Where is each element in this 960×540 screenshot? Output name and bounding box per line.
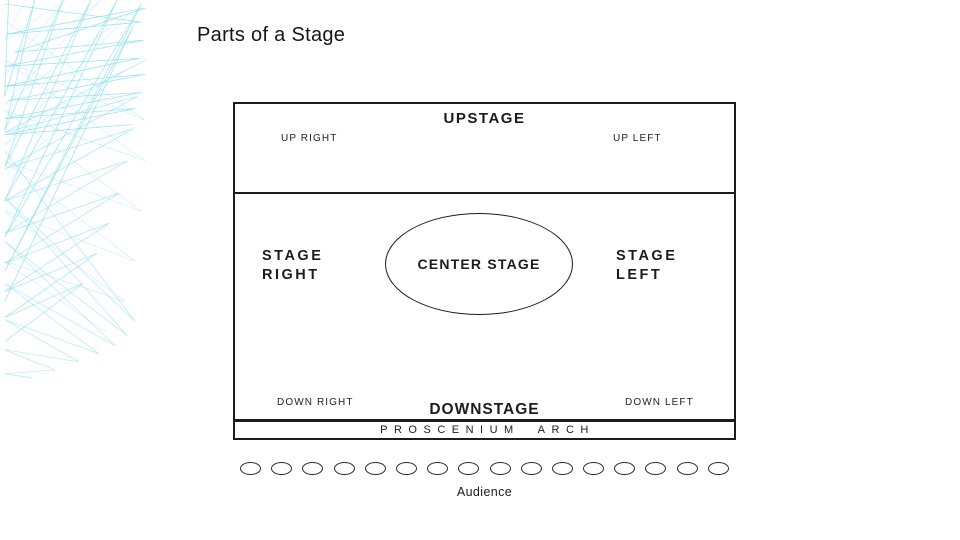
audience-seat <box>396 462 417 475</box>
audience-seat <box>302 462 323 475</box>
audience-seat <box>614 462 635 475</box>
audience-seat <box>583 462 604 475</box>
audience-seat <box>552 462 573 475</box>
stage-left-line2: LEFT <box>616 266 677 285</box>
up-right-label: UP RIGHT <box>281 133 337 144</box>
audience-seat <box>490 462 511 475</box>
down-left-label: DOWN LEFT <box>625 397 694 408</box>
slide-title: Parts of a Stage <box>197 24 345 47</box>
proscenium-arch-bar: PROSCENIUM ARCH <box>233 422 736 440</box>
audience-seats-row <box>240 461 729 475</box>
audience-seat <box>708 462 729 475</box>
stage-left-label: STAGE LEFT <box>616 247 677 285</box>
decorative-wireframe <box>0 0 150 392</box>
stage-left-line1: STAGE <box>616 247 677 266</box>
up-left-label: UP LEFT <box>613 133 662 144</box>
stage-right-line2: RIGHT <box>262 266 323 285</box>
center-stage-ellipse: CENTER STAGE <box>385 213 573 315</box>
audience-seat <box>427 462 448 475</box>
audience-seat <box>271 462 292 475</box>
audience-seat <box>677 462 698 475</box>
audience-seat <box>334 462 355 475</box>
audience-seat <box>645 462 666 475</box>
audience-seat <box>521 462 542 475</box>
stage-right-label: STAGE RIGHT <box>262 247 323 285</box>
center-stage-label: CENTER STAGE <box>417 256 540 272</box>
audience-label: Audience <box>233 485 736 499</box>
stage-right-line1: STAGE <box>262 247 323 266</box>
audience-seat <box>365 462 386 475</box>
stage-diagram: UPSTAGE UP RIGHT UP LEFT STAGE RIGHT CEN… <box>233 102 736 422</box>
audience-seat <box>458 462 479 475</box>
upstage-divider-line <box>235 192 734 194</box>
proscenium-arch-label: PROSCENIUM ARCH <box>380 424 595 436</box>
audience-seat <box>240 462 261 475</box>
upstage-label: UPSTAGE <box>235 110 734 127</box>
slide-canvas: { "slide": { "title": "Parts of a Stage"… <box>0 0 960 540</box>
